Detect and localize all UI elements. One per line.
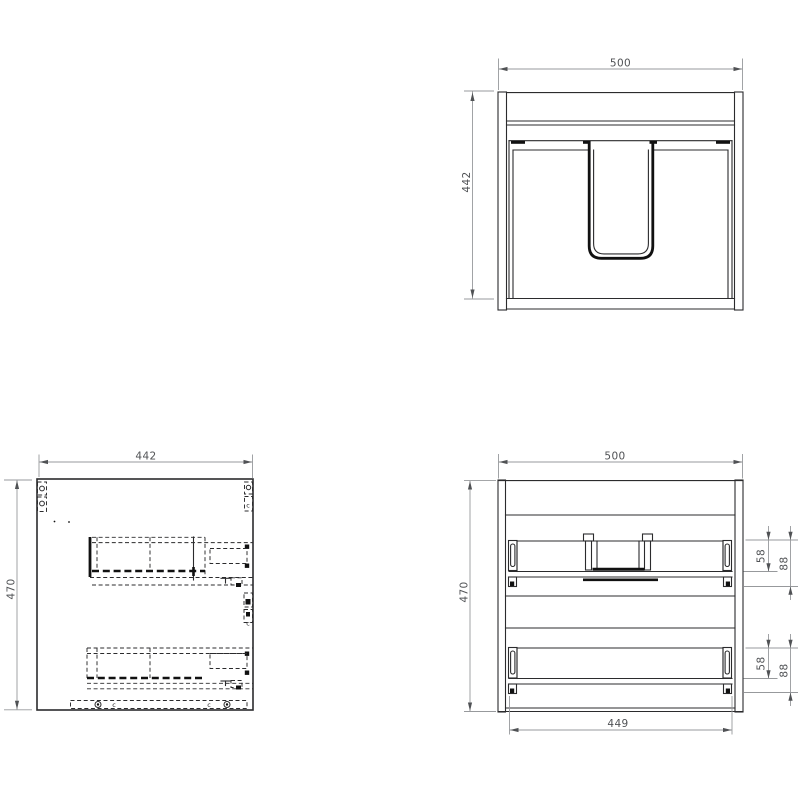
- slide-feet: [509, 577, 732, 587]
- dim-upper-drawer-heights: 58 88: [744, 526, 799, 600]
- side-view-hardware-right-column: c c: [244, 482, 253, 675]
- dim-label-lower-back-height: 58: [756, 656, 768, 670]
- dim-label-front-height: 470: [459, 581, 471, 602]
- dim-label-side-height: 470: [6, 578, 18, 599]
- dim-label-side-width: 442: [135, 451, 156, 463]
- technical-drawing-canvas: 500 442 c: [0, 0, 800, 800]
- cam-mark: c: [246, 502, 250, 510]
- cam-mark: c: [246, 620, 250, 628]
- dim-top-width: 500: [499, 58, 743, 91]
- dim-front-height: 470: [459, 481, 497, 712]
- dim-lower-drawer-heights: 58 88: [744, 634, 799, 706]
- front-view-cabinet: [498, 480, 743, 712]
- front-view-lower-drawer: [509, 648, 733, 694]
- cam-mark: c: [207, 701, 211, 709]
- dim-drawer-width: 449: [510, 696, 733, 735]
- dim-label-front-width: 500: [604, 451, 625, 463]
- dim-label-top-width: 500: [610, 58, 631, 70]
- cam-mark: c: [112, 701, 116, 709]
- dim-label-upper-back-height: 58: [756, 549, 768, 563]
- top-view-sink-cutout: [589, 141, 653, 258]
- dim-side-height: 470: [4, 480, 32, 710]
- top-view: 500 442: [461, 58, 743, 311]
- top-view-cabinet: [498, 92, 743, 310]
- side-view-hardware-top-left: [38, 482, 70, 523]
- side-view: c c: [4, 451, 253, 711]
- dim-label-top-depth: 442: [461, 171, 473, 192]
- dim-label-lower-overall-height: 88: [779, 663, 791, 677]
- dim-label-drawer-width: 449: [607, 718, 628, 730]
- dim-side-width: 442: [39, 451, 253, 479]
- front-view: 500 470 449 58: [459, 451, 799, 735]
- side-view-upper-drawer-slide: [90, 537, 253, 587]
- slide-clip: [221, 578, 242, 587]
- side-view-cabinet: [37, 479, 253, 710]
- slide-clip: [221, 681, 242, 690]
- side-view-bottom-rail: c c: [71, 701, 248, 709]
- side-view-lower-drawer-slide: [87, 648, 253, 690]
- front-view-upper-drawer: [509, 534, 733, 587]
- dim-label-upper-overall-height: 88: [779, 556, 791, 570]
- slide-feet: [509, 684, 732, 694]
- dim-top-depth: 442: [461, 91, 494, 299]
- dim-front-width: 500: [499, 451, 743, 479]
